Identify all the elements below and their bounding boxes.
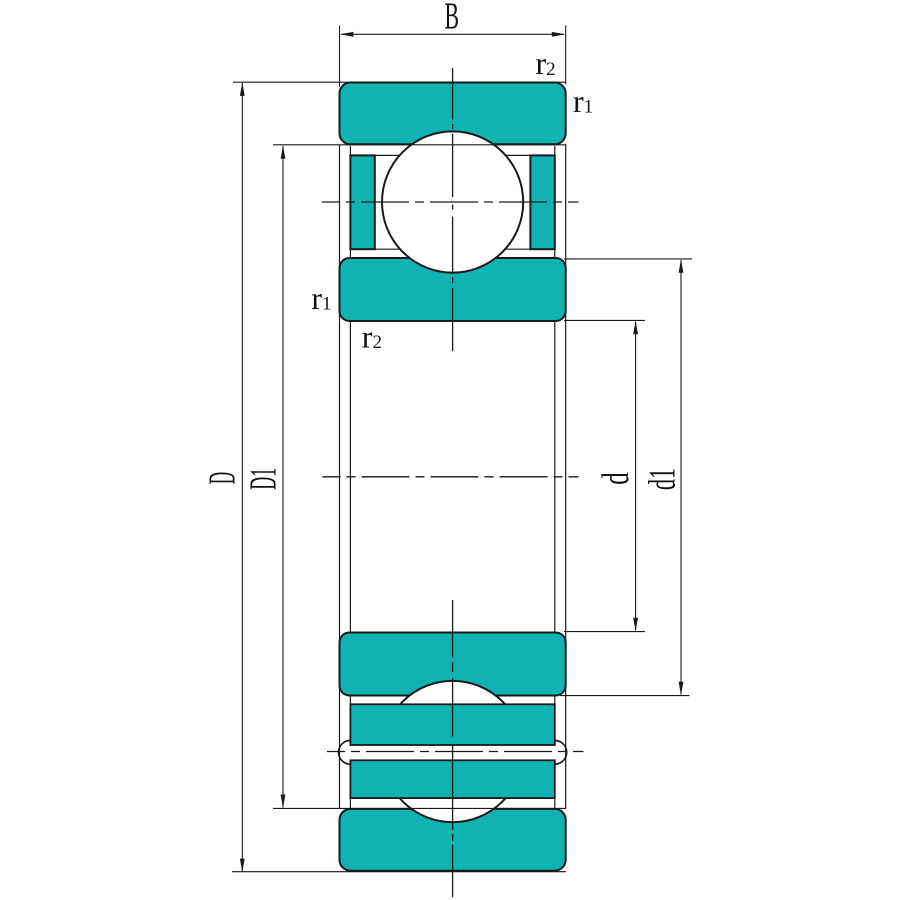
svg-text:D1: D1 <box>243 468 285 490</box>
svg-text:D: D <box>202 472 244 485</box>
svg-text:d1: d1 <box>642 468 684 490</box>
svg-text:d: d <box>595 472 637 485</box>
svg-text:B: B <box>444 0 459 38</box>
